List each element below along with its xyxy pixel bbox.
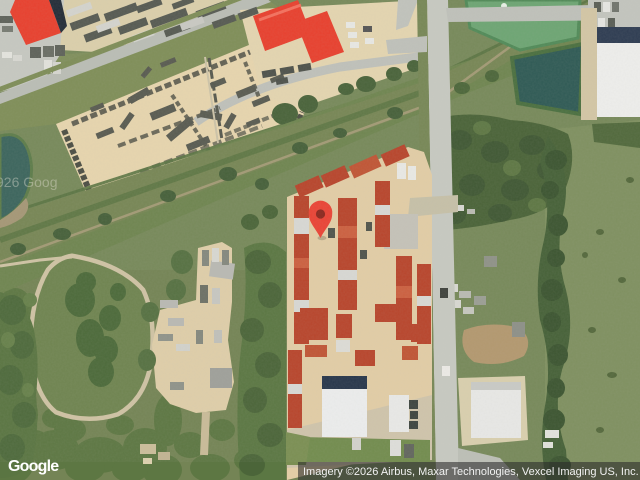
svg-text:Google: Google: [8, 458, 59, 475]
svg-text:Imagery ©2026 Airbus, Maxar Te: Imagery ©2026 Airbus, Maxar Technologies…: [303, 466, 639, 478]
